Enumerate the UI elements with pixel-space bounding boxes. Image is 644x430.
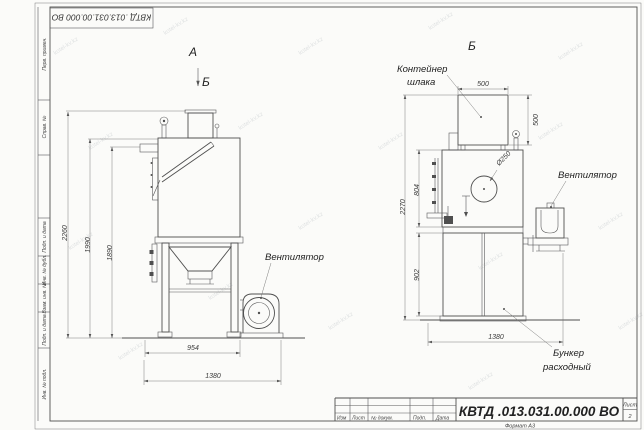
side-view-label: Б [468,39,476,53]
watermark: kotel-kv.kz [163,16,190,36]
slag-container-label-2: шлака [407,77,435,88]
front-chimney [160,110,219,138]
watermark-layer: kotel-kv.kz kotel-kv.kz kotel-kv.kz kote… [53,11,644,391]
frame-field-podp-data-1: Подп. и дата [42,221,48,253]
watermark: kotel-kv.kz [538,121,565,141]
watermark: kotel-kv.kz [298,36,325,56]
tb-col-izm: Изм [337,416,347,422]
slag-container [458,95,508,150]
dim-2260: 2260 [62,225,69,242]
dim-804: 804 [414,184,421,196]
front-section-mark: Б [202,75,210,89]
frame-field-vzam-inv: Взам. инв. № [42,282,48,314]
front-fan [240,294,283,338]
tb-col-data: Дата [435,416,449,422]
dim-500-width: 500 [477,81,489,88]
dim-902: 902 [414,269,421,281]
front-inlet-stub [140,144,158,152]
watermark: kotel-kv.kz [298,211,325,231]
watermark: kotel-kv.kz [378,131,405,151]
front-view: А Б [62,45,324,385]
watermark: kotel-kv.kz [118,341,145,361]
side-dims: 500 500 2270 804 902 1380 [400,81,563,346]
dim-1380-front: 1380 [205,373,221,380]
tb-col-list: Лист [351,416,365,422]
tb-sheet-number: 2 [627,414,631,420]
watermark: kotel-kv.kz [428,11,455,31]
frame-field-inv-podl: Инв. № подл. [42,368,48,399]
format-note: Формат А3 [505,424,536,430]
dim-1380-side: 1380 [488,334,504,341]
side-fan-label: Вентилятор [558,170,617,181]
dim-hole-250: Ø250 [495,150,513,168]
watermark: kotel-kv.kz [328,311,355,331]
lifting-eye [513,131,520,151]
dim-500-height: 500 [533,114,540,126]
hopper-label-1: Бункер [553,348,584,359]
front-view-label: А [188,45,197,59]
tb-col-doc: № докум. [371,416,393,422]
watermark: kotel-kv.kz [53,36,80,56]
frame-field-sprav-n: Справ. № [42,115,48,138]
watermark: kotel-kv.kz [468,371,495,391]
watermark: kotel-kv.kz [88,131,115,151]
title-block: Изм Лист № докум. Подп. Дата КВТД .013.0… [335,398,637,430]
front-fan-label: Вентилятор [265,252,324,263]
hopper-cabinet [440,227,526,321]
top-reference-stamp: КВТД .013.031.00.000 ВО [50,8,153,28]
hopper-label-2: расходный [542,362,592,373]
front-cabinet [140,138,243,243]
dim-954: 954 [187,345,199,352]
side-body [427,150,523,227]
slag-container-label-1: Контейнер [397,64,447,75]
front-dims: 2260 1990 1890 954 1380 [62,111,281,385]
watermark: kotel-kv.kz [598,211,625,231]
side-fan [523,203,568,252]
tb-col-podp: Подп. [413,416,426,422]
frame-field-perv-primen: Перв. примен. [42,37,48,70]
dim-1990: 1990 [85,237,92,253]
watermark: kotel-kv.kz [618,311,644,331]
dim-1890: 1890 [107,245,114,261]
tb-doc-number: КВТД .013.031.00.000 ВО [459,404,620,419]
frame-field-inv-dubl: Инв. № дубл. [42,255,48,286]
watermark: kotel-kv.kz [208,281,235,301]
drawing-sheet: kotel-kv.kz kotel-kv.kz kotel-kv.kz kote… [0,0,644,430]
watermark: kotel-kv.kz [558,41,585,61]
side-pipe-stub [449,133,458,150]
side-view: Б [397,39,617,373]
frame-field-podp-data-2: Подп. и дата [42,314,48,346]
top-stamp-doc-number: КВТД .013.031.00.000 ВО [51,13,151,23]
tb-sheet-label: Лист [622,403,638,409]
watermark: kotel-kv.kz [238,111,265,131]
dim-2270: 2270 [400,199,407,216]
